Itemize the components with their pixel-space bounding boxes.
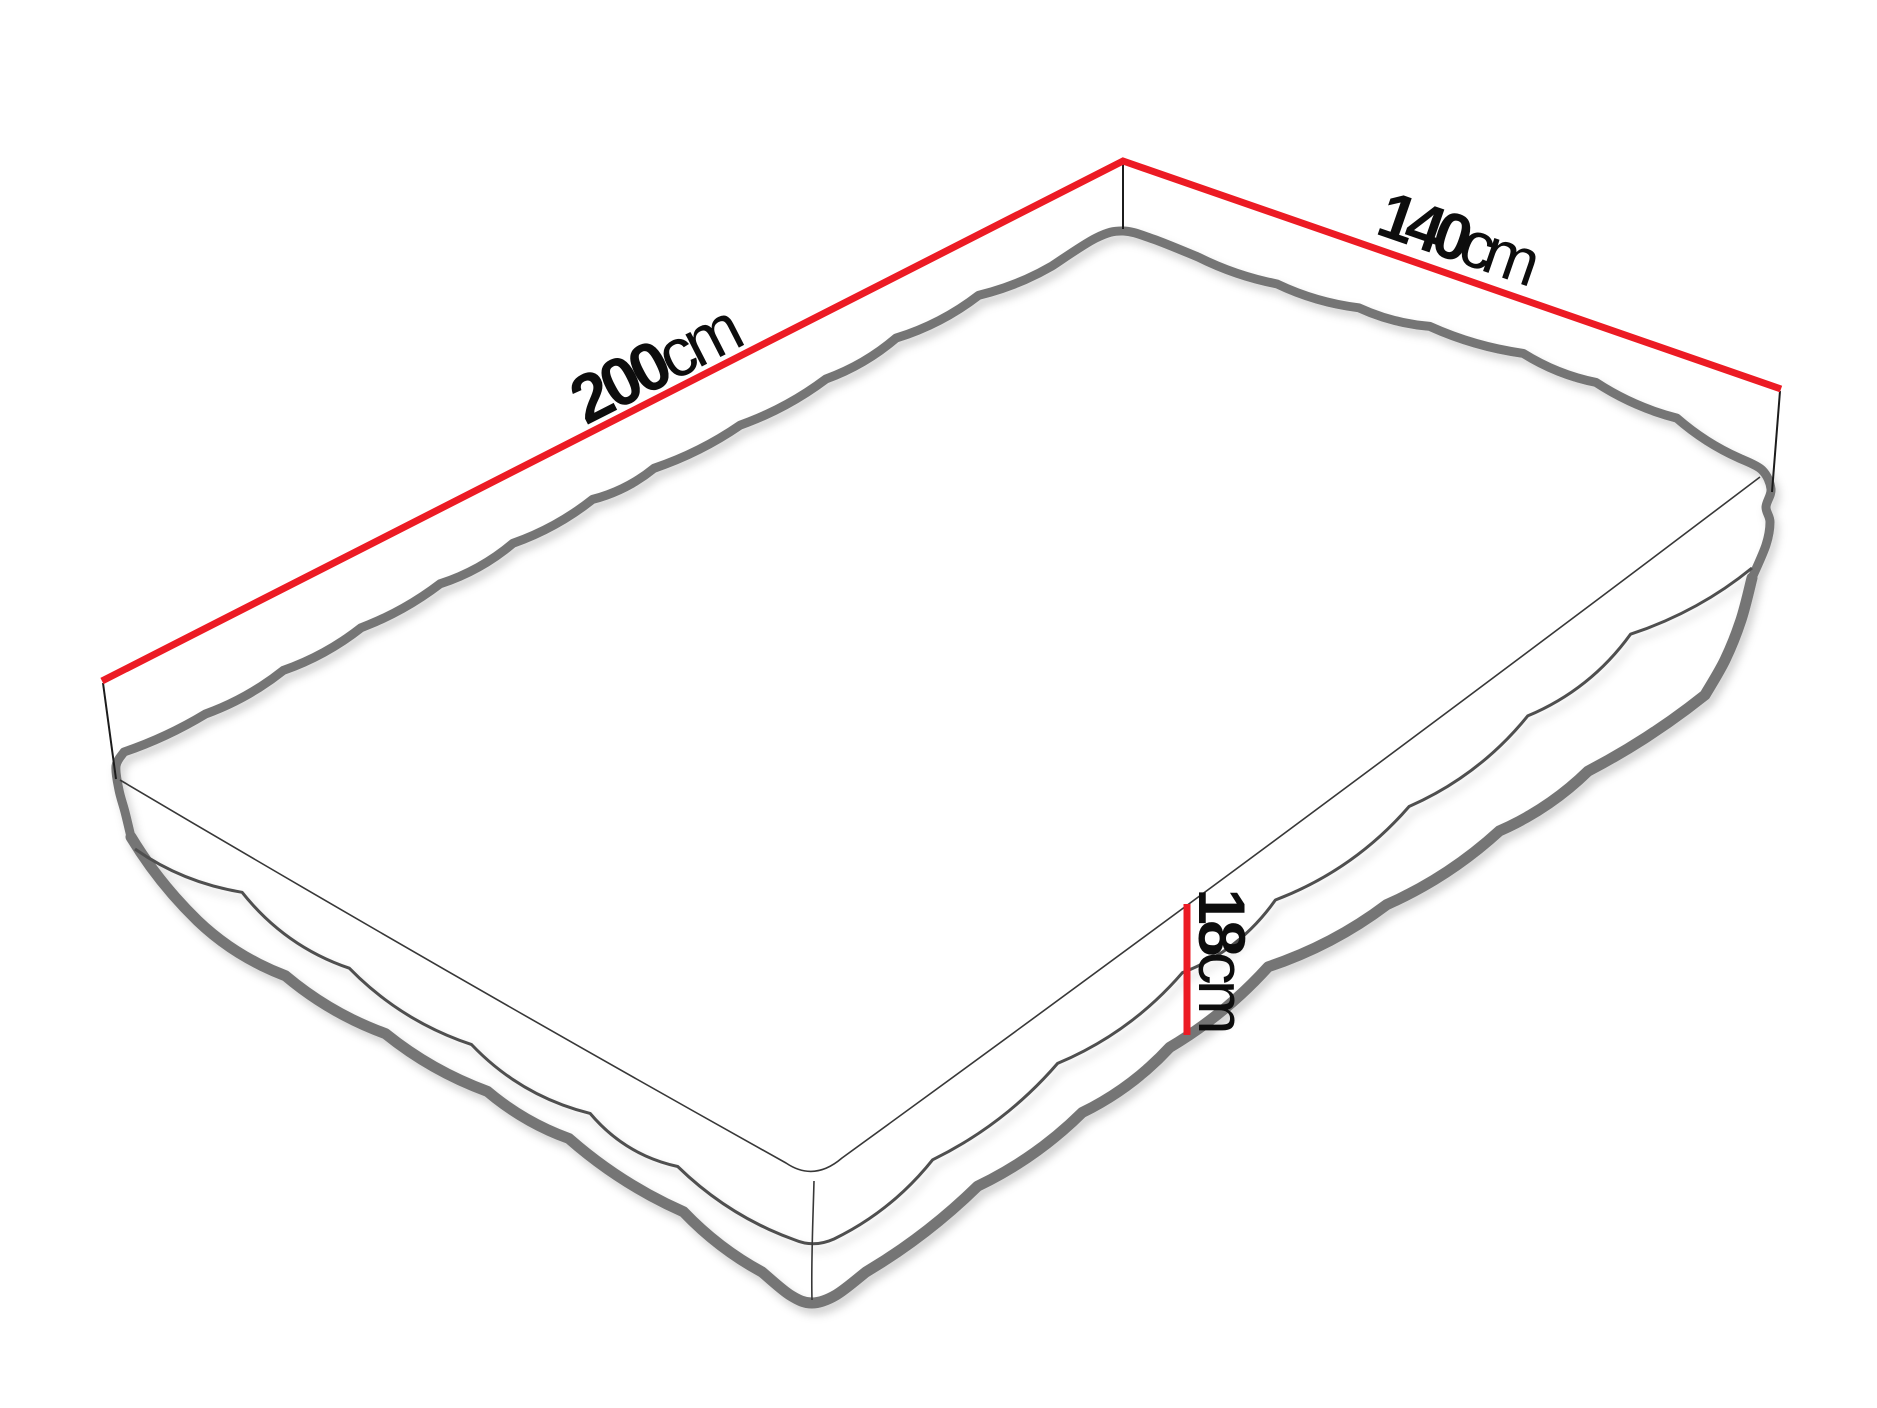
svg-text:18cm: 18cm — [1185, 888, 1259, 1030]
